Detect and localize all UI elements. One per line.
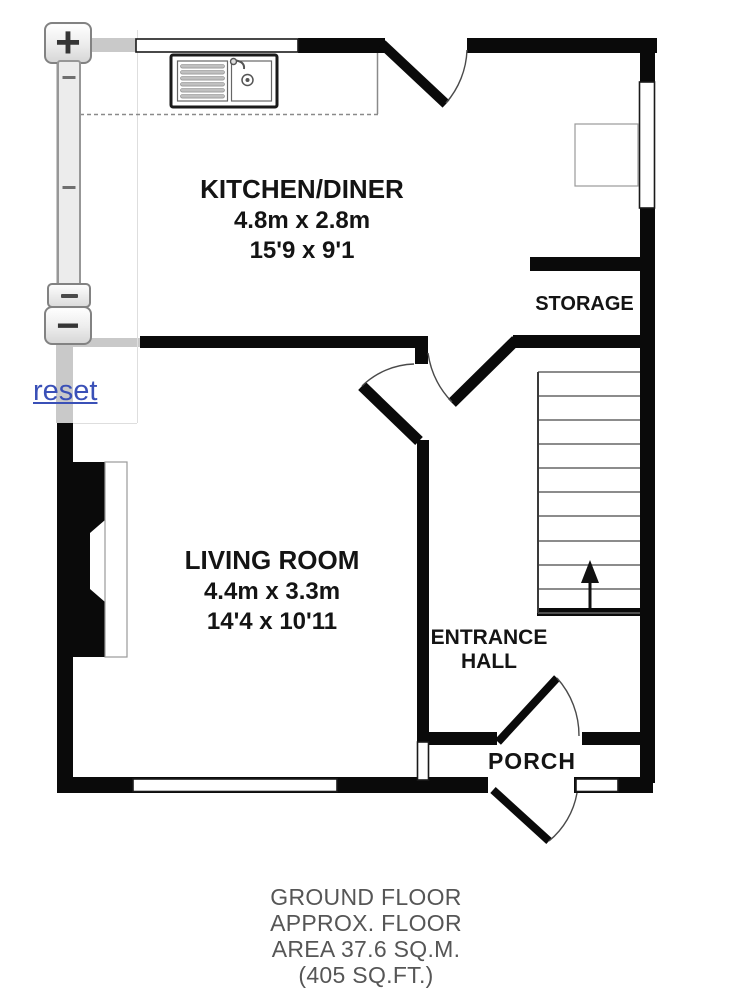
handle-grip-icon [61, 294, 78, 298]
kitchen-metric: 4.8m x 2.8m [152, 206, 452, 236]
door-swing-arcs [362, 50, 579, 841]
caption-line-2: APPROX. FLOOR [216, 910, 516, 936]
walls [57, 38, 657, 793]
door-leaves [362, 44, 557, 841]
slider-tick [63, 186, 76, 189]
reset-link[interactable]: reset [33, 375, 97, 408]
stairs [538, 372, 640, 613]
storage-tank [575, 124, 638, 186]
stairs-up-arrow [581, 560, 599, 608]
drain-icon [242, 75, 253, 86]
living-room-label: LIVING ROOM 4.4m x 3.3m 14'4 x 10'11 [122, 544, 422, 637]
slider-tick [63, 76, 76, 79]
caption-line-1: GROUND FLOOR [216, 884, 516, 910]
floorplan-canvas[interactable] [0, 0, 750, 1000]
floor-caption: GROUND FLOOR APPROX. FLOOR AREA 37.6 SQ.… [216, 884, 516, 988]
floorplan-viewer: KITCHEN/DINER 4.8m x 2.8m 15'9 x 9'1 LIV… [0, 0, 750, 1000]
zoom-slider-track[interactable] [57, 60, 81, 290]
caption-line-3: AREA 37.6 SQ.M. [216, 936, 516, 962]
kitchen-sink [171, 55, 277, 107]
plus-icon: + [55, 24, 81, 62]
minus-icon: − [56, 311, 79, 341]
front-door-opening [488, 776, 574, 794]
living-name: LIVING ROOM [122, 544, 422, 577]
kitchen-imperial: 15'9 x 9'1 [152, 236, 452, 266]
kitchen-name: KITCHEN/DINER [152, 173, 452, 206]
chimney-breast [72, 462, 127, 657]
zoom-out-button[interactable]: − [44, 306, 92, 345]
entrance-hall-label: ENTRANCE HALL [419, 626, 559, 674]
porch-label: PORCH [457, 748, 607, 775]
caption-line-4: (405 SQ.FT.) [216, 962, 516, 988]
kitchen-label: KITCHEN/DINER 4.8m x 2.8m 15'9 x 9'1 [152, 173, 452, 266]
living-imperial: 14'4 x 10'11 [122, 607, 422, 637]
zoom-in-button[interactable]: + [44, 22, 92, 64]
living-metric: 4.4m x 3.3m [122, 577, 422, 607]
storage-label: STORAGE [509, 292, 660, 316]
tile-seam [73, 30, 138, 424]
floorplan-image [0, 0, 750, 1000]
